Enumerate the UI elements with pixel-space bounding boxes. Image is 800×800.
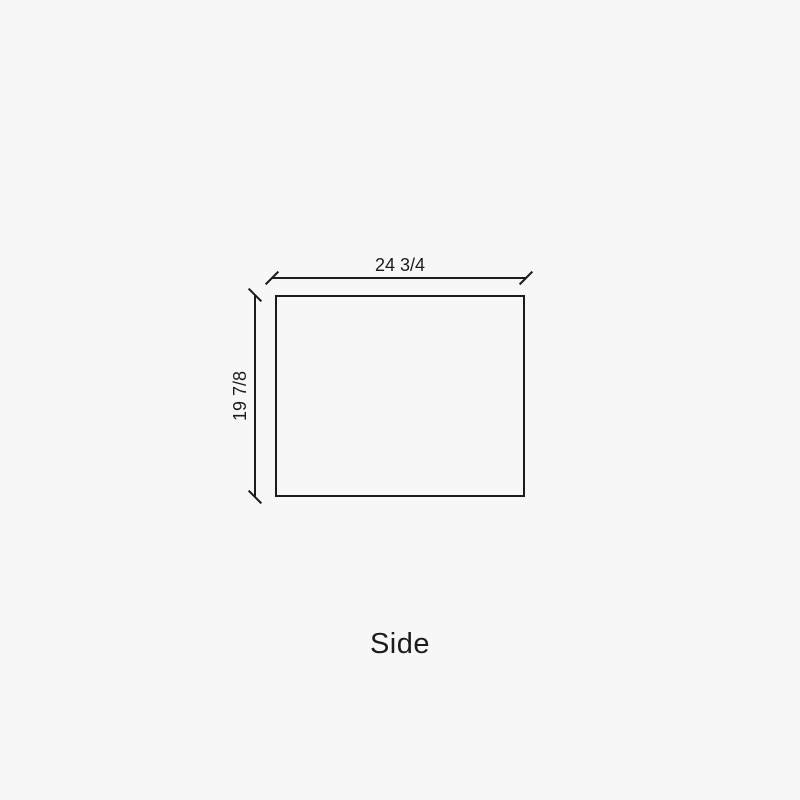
side-view-drawing: 24 3/4 19 7/8 Side bbox=[0, 0, 800, 800]
view-title: Side bbox=[0, 627, 800, 661]
width-dimension-label: 24 3/4 bbox=[275, 254, 525, 276]
width-dimension-line bbox=[272, 277, 526, 279]
panel-outline bbox=[275, 295, 525, 497]
height-dimension-line bbox=[254, 295, 256, 497]
height-dimension-label: 19 7/8 bbox=[229, 346, 251, 446]
